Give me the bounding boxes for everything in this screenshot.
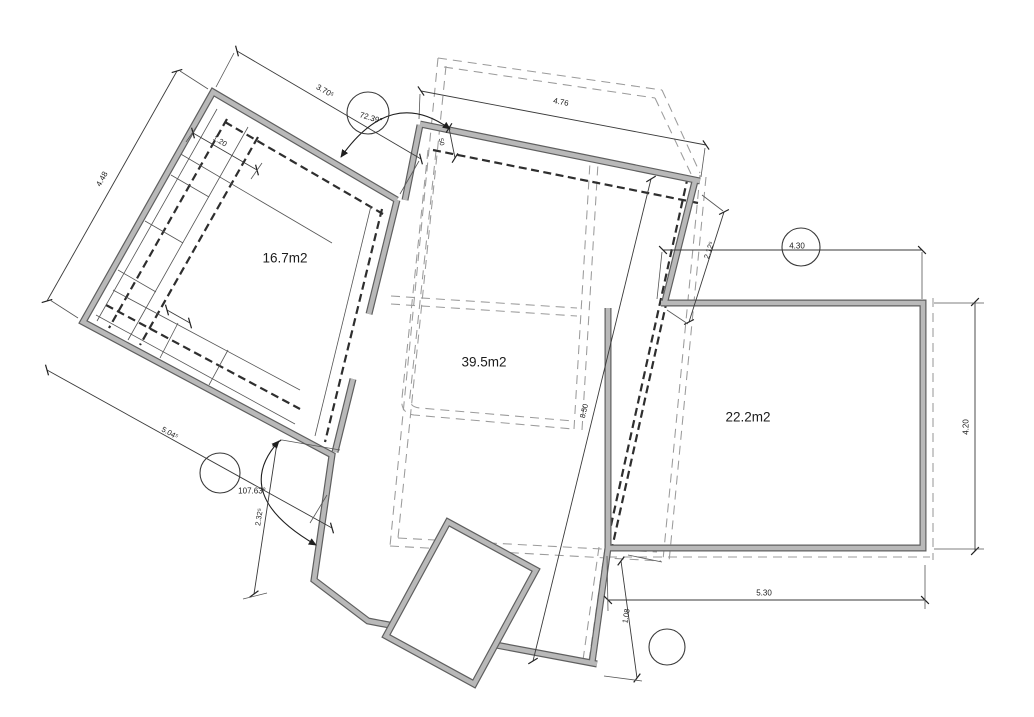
dimension-tick xyxy=(165,305,168,316)
dimension-line xyxy=(237,51,421,159)
extension-line xyxy=(702,195,723,211)
dimension-tick xyxy=(42,299,53,302)
dimension-tick xyxy=(188,318,191,329)
dimension-line xyxy=(47,370,332,528)
dim-4-30: 4.30 xyxy=(789,242,805,251)
dimension-tick xyxy=(719,210,729,215)
dim-4-20: 4.20 xyxy=(962,419,971,435)
dimension-tick xyxy=(452,153,458,162)
dim-3-70: 3.70⁵ xyxy=(315,82,336,99)
dimension-tick xyxy=(528,658,537,664)
angle-72-39: 72.39° xyxy=(359,110,384,125)
reference-circle xyxy=(200,453,240,493)
dim-4-48: 4.48 xyxy=(94,170,110,188)
extension-line xyxy=(419,94,420,119)
extension-line xyxy=(657,252,662,299)
extension-line xyxy=(251,163,262,179)
dim-4-76: 4.76 xyxy=(552,96,570,108)
angle-107-63: 107.63° xyxy=(238,487,266,496)
dimension-tick xyxy=(330,523,333,534)
extension-line xyxy=(180,71,208,89)
floorplan-page: 16.7m239.5m222.2m23.70⁵4.481.204.76502.1… xyxy=(0,0,1034,717)
room-area-label-3: 22.2m2 xyxy=(725,410,770,425)
extension-line xyxy=(216,53,234,87)
dim-1-08: 1.08 xyxy=(620,608,631,624)
dimension-tick xyxy=(45,365,48,376)
room-area-label-2: 39.5m2 xyxy=(461,355,506,370)
dimension-tick xyxy=(420,154,423,165)
dimension-tick xyxy=(646,176,655,182)
dimension-tick xyxy=(236,46,239,57)
extension-line xyxy=(667,310,688,324)
room-area-label-1: 16.7m2 xyxy=(262,251,307,266)
annotation-text-group: 16.7m239.5m222.2m23.70⁵4.481.204.76502.1… xyxy=(94,82,970,624)
extension-line xyxy=(50,300,78,318)
dim-5-04: 5.04⁵ xyxy=(160,425,180,441)
extension-line xyxy=(701,148,705,177)
extension-line xyxy=(628,555,662,562)
dim-1-20: 1.20 xyxy=(211,133,228,148)
dim-5-30: 5.30 xyxy=(756,589,772,598)
floorplan-canvas: 16.7m239.5m222.2m23.70⁵4.481.204.76502.1… xyxy=(0,0,1034,717)
dim-2-32: 2.32⁵ xyxy=(253,508,265,527)
rotated-room-group xyxy=(386,522,536,684)
dim-8-50: 8.50 xyxy=(578,403,590,419)
reference-circle xyxy=(649,629,685,665)
